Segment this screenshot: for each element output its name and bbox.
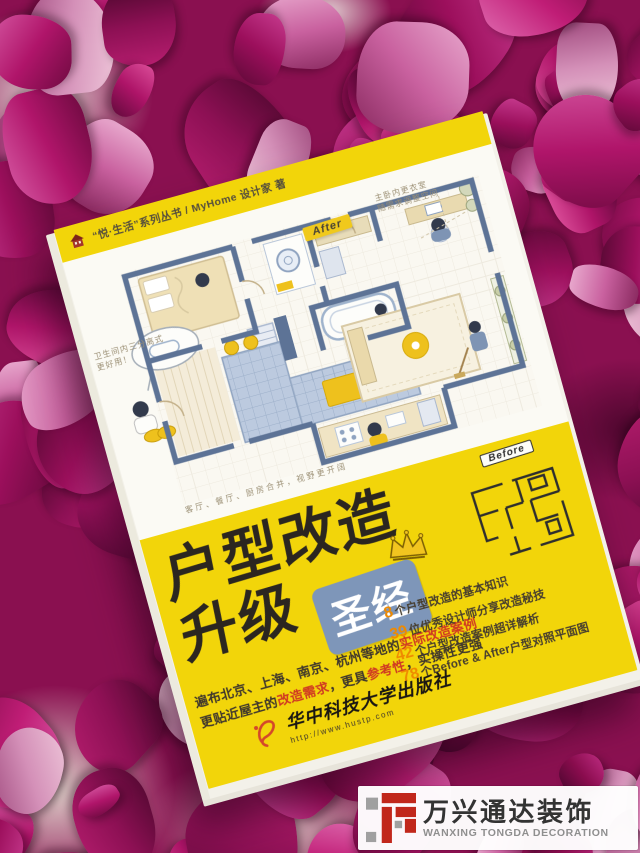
bullet-number: 42 (394, 644, 416, 666)
bullet-number: 39 (388, 622, 410, 644)
before-label: Before (479, 439, 534, 468)
watermark-texts: 万兴通达装饰 WANXING TONGDA DECORATION (423, 797, 609, 839)
series-logo-house-icon (68, 231, 87, 250)
book: “悦·生活”系列丛书 / MyHome 设计家 著 (54, 111, 638, 789)
watermark: 万兴通达装饰 WANXING TONGDA DECORATION (358, 786, 638, 850)
before-floorplan-illustration (458, 455, 591, 574)
publisher-logo-icon (248, 713, 286, 754)
crown-icon (383, 527, 432, 563)
photo-scene: “悦·生活”系列丛书 / MyHome 设计家 著 (0, 0, 640, 853)
before-label-text: Before (487, 443, 526, 465)
book-cover: “悦·生活”系列丛书 / MyHome 设计家 著 (54, 111, 638, 789)
watermark-name-en: WANXING TONGDA DECORATION (423, 827, 609, 839)
watermark-name-cn: 万兴通达装饰 (423, 797, 609, 827)
wanxing-logo-icon (366, 793, 416, 843)
